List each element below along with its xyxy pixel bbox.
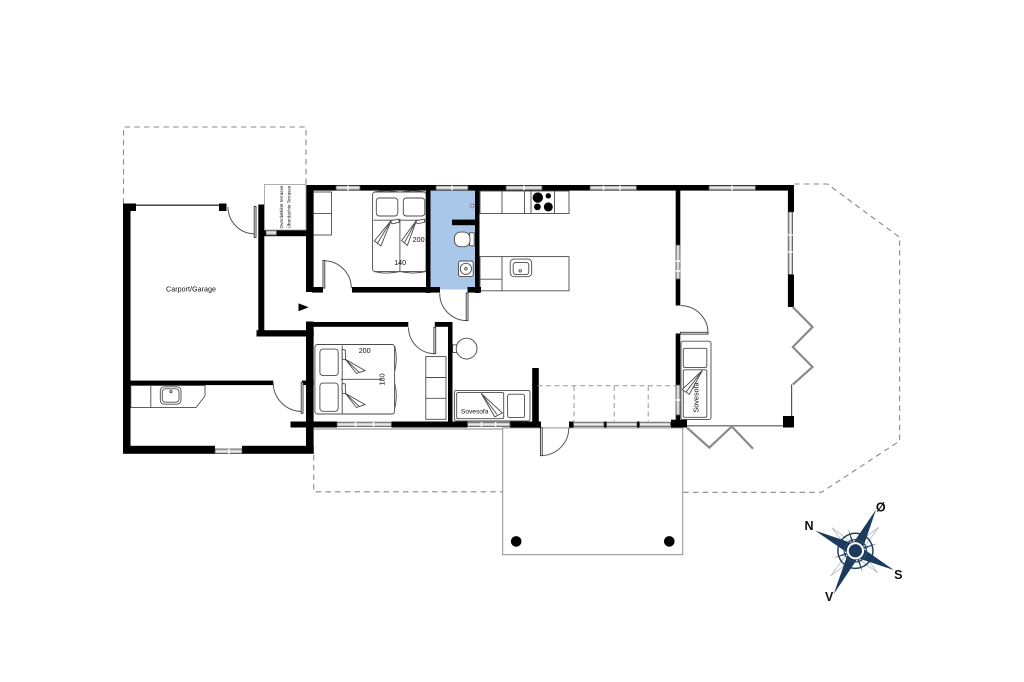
svg-text:Overdækket terrasse: Overdækket terrasse — [279, 185, 284, 228]
svg-text:Überdachte Terrasse: Überdachte Terrasse — [286, 185, 292, 228]
svg-text:Carport/Garage: Carport/Garage — [166, 285, 216, 294]
svg-text:Sovesofa: Sovesofa — [461, 408, 489, 415]
svg-text:200: 200 — [413, 235, 425, 244]
svg-text:180: 180 — [378, 373, 387, 385]
svg-text:Ø: Ø — [876, 501, 886, 515]
svg-text:140: 140 — [394, 258, 406, 267]
svg-text:Sovesofa: Sovesofa — [692, 383, 701, 413]
svg-text:N: N — [804, 519, 813, 533]
svg-text:V: V — [825, 590, 834, 604]
svg-text:200: 200 — [359, 346, 371, 355]
svg-text:S: S — [894, 568, 902, 582]
